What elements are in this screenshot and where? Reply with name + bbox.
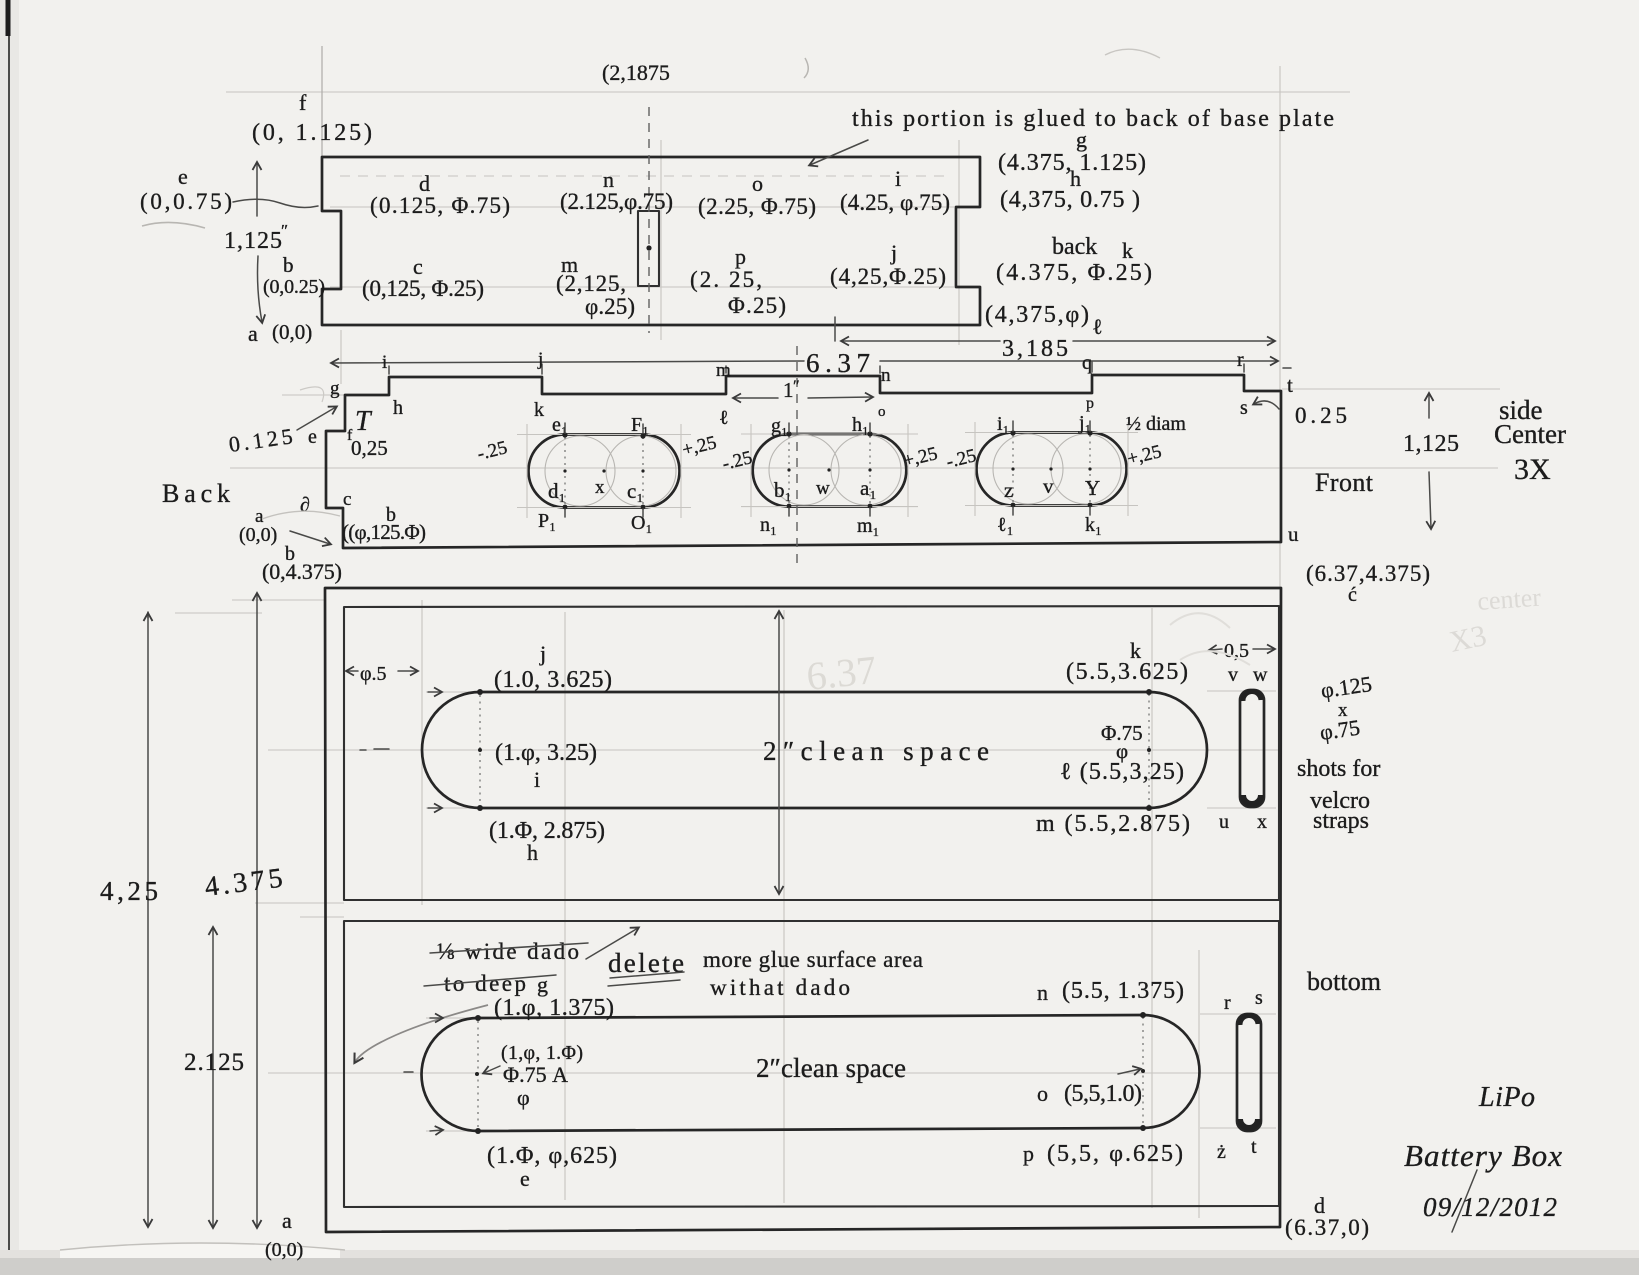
- svg-text:h₁: h₁: [852, 414, 869, 436]
- svg-text:x: x: [595, 477, 605, 498]
- svg-text:n: n: [1037, 980, 1048, 1005]
- svg-text:ć: ć: [1348, 584, 1357, 606]
- svg-text:φ: φ: [517, 1085, 530, 1110]
- svg-text:Φ.75 А: Φ.75 А: [503, 1062, 568, 1087]
- svg-text:m: m: [716, 360, 731, 381]
- svg-text:(5.5, 1.375): (5.5, 1.375): [1062, 978, 1184, 1004]
- svg-text:″: ″: [793, 378, 800, 395]
- svg-text:(2,1875: (2,1875: [602, 60, 670, 85]
- svg-text:w: w: [816, 478, 830, 499]
- svg-text:u: u: [1219, 811, 1229, 833]
- svg-text:3X: 3X: [1514, 453, 1551, 486]
- svg-text:o: o: [752, 171, 763, 196]
- svg-text:v: v: [1043, 474, 1054, 498]
- svg-text:((φ,125.Φ): ((φ,125.Φ): [342, 520, 426, 544]
- svg-text:F₁: F₁: [631, 414, 649, 436]
- svg-text:P₁: P₁: [538, 510, 556, 532]
- svg-text:z: z: [1004, 478, 1013, 502]
- svg-text:g: g: [330, 378, 340, 399]
- svg-text:6.37: 6.37: [806, 348, 870, 378]
- svg-text:2″clean space: 2″clean space: [756, 1053, 906, 1083]
- svg-text:Battery Box: Battery Box: [1404, 1138, 1562, 1173]
- svg-text:n₁: n₁: [760, 514, 777, 536]
- svg-text:u: u: [1288, 522, 1299, 546]
- svg-text:bottom: bottom: [1307, 967, 1381, 996]
- svg-text:T: T: [355, 406, 373, 437]
- svg-text:d₁: d₁: [548, 479, 566, 503]
- svg-text:j: j: [537, 349, 543, 370]
- svg-text:p: p: [735, 244, 746, 269]
- svg-text:(0, 1.125): (0, 1.125): [252, 120, 372, 146]
- svg-text:(1,φ, 1.Φ): (1,φ, 1.Φ): [501, 1042, 583, 1064]
- svg-text:(4,375, 0.75 ): (4,375, 0.75 ): [1000, 187, 1140, 213]
- svg-text:(5,5,1.0): (5,5,1.0): [1064, 1081, 1142, 1107]
- svg-text:s: s: [1240, 397, 1248, 419]
- svg-text:ℓ₁: ℓ₁: [997, 514, 1014, 536]
- svg-text:ℓ: ℓ: [719, 407, 729, 429]
- svg-text:p: p: [1086, 395, 1094, 412]
- svg-text:(6.37,4.375): (6.37,4.375): [1306, 561, 1430, 586]
- svg-text:1: 1: [783, 378, 794, 402]
- svg-text:a: a: [248, 321, 258, 346]
- svg-text:i: i: [895, 166, 901, 191]
- svg-text:j: j: [890, 240, 897, 265]
- svg-text:j: j: [539, 641, 546, 666]
- svg-text:(0,0.25): (0,0.25): [263, 276, 325, 298]
- svg-text:p: p: [1023, 1141, 1034, 1166]
- svg-text:09/12/2012: 09/12/2012: [1423, 1192, 1557, 1222]
- svg-text:o: o: [1037, 1081, 1048, 1106]
- svg-text:(4,25,Φ.25): (4,25,Φ.25): [830, 264, 946, 289]
- svg-text:straps: straps: [1313, 808, 1369, 834]
- svg-text:2.125: 2.125: [184, 1049, 244, 1076]
- svg-text:k₁: k₁: [1085, 514, 1102, 536]
- svg-text:i₁: i₁: [997, 413, 1010, 435]
- svg-text:φ.25): φ.25): [585, 294, 635, 319]
- svg-text:h: h: [393, 397, 403, 419]
- svg-text:a: a: [282, 1208, 292, 1233]
- svg-text:ℓ (5.5,3,25): ℓ (5.5,3,25): [1060, 759, 1184, 785]
- svg-text:more glue surface area: more glue surface area: [703, 947, 923, 972]
- svg-text:∂: ∂: [300, 494, 310, 516]
- svg-text:Front: Front: [1315, 468, 1374, 497]
- svg-text:n: n: [881, 365, 891, 386]
- svg-text:r: r: [1237, 349, 1244, 371]
- svg-text:LiPo: LiPo: [1478, 1082, 1535, 1113]
- svg-text:(0,0): (0,0): [272, 320, 312, 344]
- svg-text:(5.5,3.625): (5.5,3.625): [1066, 659, 1188, 685]
- svg-text:6.37: 6.37: [804, 647, 878, 699]
- svg-text:(6.37,0): (6.37,0): [1285, 1215, 1369, 1240]
- svg-text:(0,0): (0,0): [265, 1239, 303, 1261]
- svg-text:t: t: [1251, 1136, 1257, 1158]
- svg-text:back: back: [1052, 234, 1097, 260]
- svg-text:0.25: 0.25: [1295, 403, 1347, 428]
- svg-text:Center: Center: [1494, 419, 1566, 449]
- svg-text:x: x: [1257, 811, 1267, 833]
- svg-text:½ diam: ½ diam: [1126, 413, 1186, 435]
- svg-text:3,185: 3,185: [1002, 336, 1068, 362]
- svg-text:Y: Y: [1085, 476, 1100, 500]
- svg-text:o: o: [878, 404, 886, 420]
- svg-text:c: c: [343, 489, 351, 510]
- svg-text:(2,125,: (2,125,: [556, 271, 626, 296]
- svg-text:(4.25, φ.75): (4.25, φ.75): [840, 190, 950, 215]
- svg-text:f: f: [299, 90, 307, 115]
- svg-text:e: e: [520, 1166, 530, 1191]
- svg-text:(1.φ, 1.375): (1.φ, 1.375): [494, 995, 614, 1021]
- svg-text:g: g: [1076, 127, 1087, 152]
- svg-text:ℓ: ℓ: [1092, 314, 1103, 339]
- svg-text:q: q: [1082, 352, 1092, 374]
- svg-text:b: b: [283, 253, 294, 277]
- svg-text:φ.5: φ.5: [360, 663, 387, 685]
- svg-text:0,25: 0,25: [351, 436, 388, 460]
- svg-text:e: e: [178, 164, 188, 189]
- svg-text:(0,0): (0,0): [239, 524, 277, 546]
- svg-text:s: s: [1255, 987, 1263, 1009]
- svg-text:(4,375,φ): (4,375,φ): [985, 302, 1089, 328]
- svg-text:(5,5, φ.625): (5,5, φ.625): [1047, 1141, 1183, 1167]
- svg-text:(1.Φ, 2.875): (1.Φ, 2.875): [489, 818, 605, 844]
- svg-text:(2.125,φ.75): (2.125,φ.75): [560, 189, 673, 214]
- svg-text:1,125: 1,125: [1403, 431, 1459, 457]
- svg-text:this portion is glued to back: this portion is glued to back of base pl…: [852, 106, 1334, 132]
- svg-text:center: center: [1476, 583, 1542, 616]
- svg-text:(2.25, Φ.75): (2.25, Φ.75): [698, 194, 816, 219]
- svg-text:ż: ż: [1217, 1141, 1226, 1163]
- svg-text:″: ″: [281, 221, 288, 240]
- svg-text:i: i: [534, 767, 540, 792]
- svg-text:g₁: g₁: [771, 415, 788, 437]
- svg-text:b₁: b₁: [774, 478, 792, 502]
- svg-text:m₁: m₁: [857, 515, 880, 537]
- svg-text:r: r: [1224, 992, 1231, 1014]
- svg-text:e: e: [308, 426, 317, 448]
- svg-text:w: w: [1253, 664, 1268, 686]
- svg-text:i: i: [382, 352, 387, 373]
- svg-text:O₁: O₁: [631, 512, 652, 534]
- svg-text:a₁: a₁: [860, 476, 877, 500]
- svg-text:(0.125, Φ.75): (0.125, Φ.75): [370, 193, 510, 218]
- svg-text:(2. 25,: (2. 25,: [690, 267, 762, 292]
- svg-text:(0,125, Φ.25): (0,125, Φ.25): [362, 276, 484, 301]
- svg-text:k: k: [534, 399, 544, 421]
- svg-text:1,125: 1,125: [224, 228, 282, 254]
- svg-text:v: v: [1228, 664, 1238, 686]
- svg-text:4,25: 4,25: [100, 876, 158, 906]
- svg-text:(1.φ, 3.25): (1.φ, 3.25): [495, 740, 597, 766]
- svg-text:(0,4.375): (0,4.375): [262, 559, 342, 584]
- svg-text:(1.0, 3.625): (1.0, 3.625): [494, 667, 612, 693]
- svg-text:(1.Φ, φ,625): (1.Φ, φ,625): [487, 1143, 617, 1169]
- svg-text:c₁: c₁: [627, 479, 644, 503]
- svg-text:t: t: [1287, 373, 1293, 397]
- svg-text:g: g: [537, 972, 548, 997]
- svg-text:withat dado: withat dado: [710, 975, 850, 1000]
- svg-text:shots for: shots for: [1297, 756, 1380, 782]
